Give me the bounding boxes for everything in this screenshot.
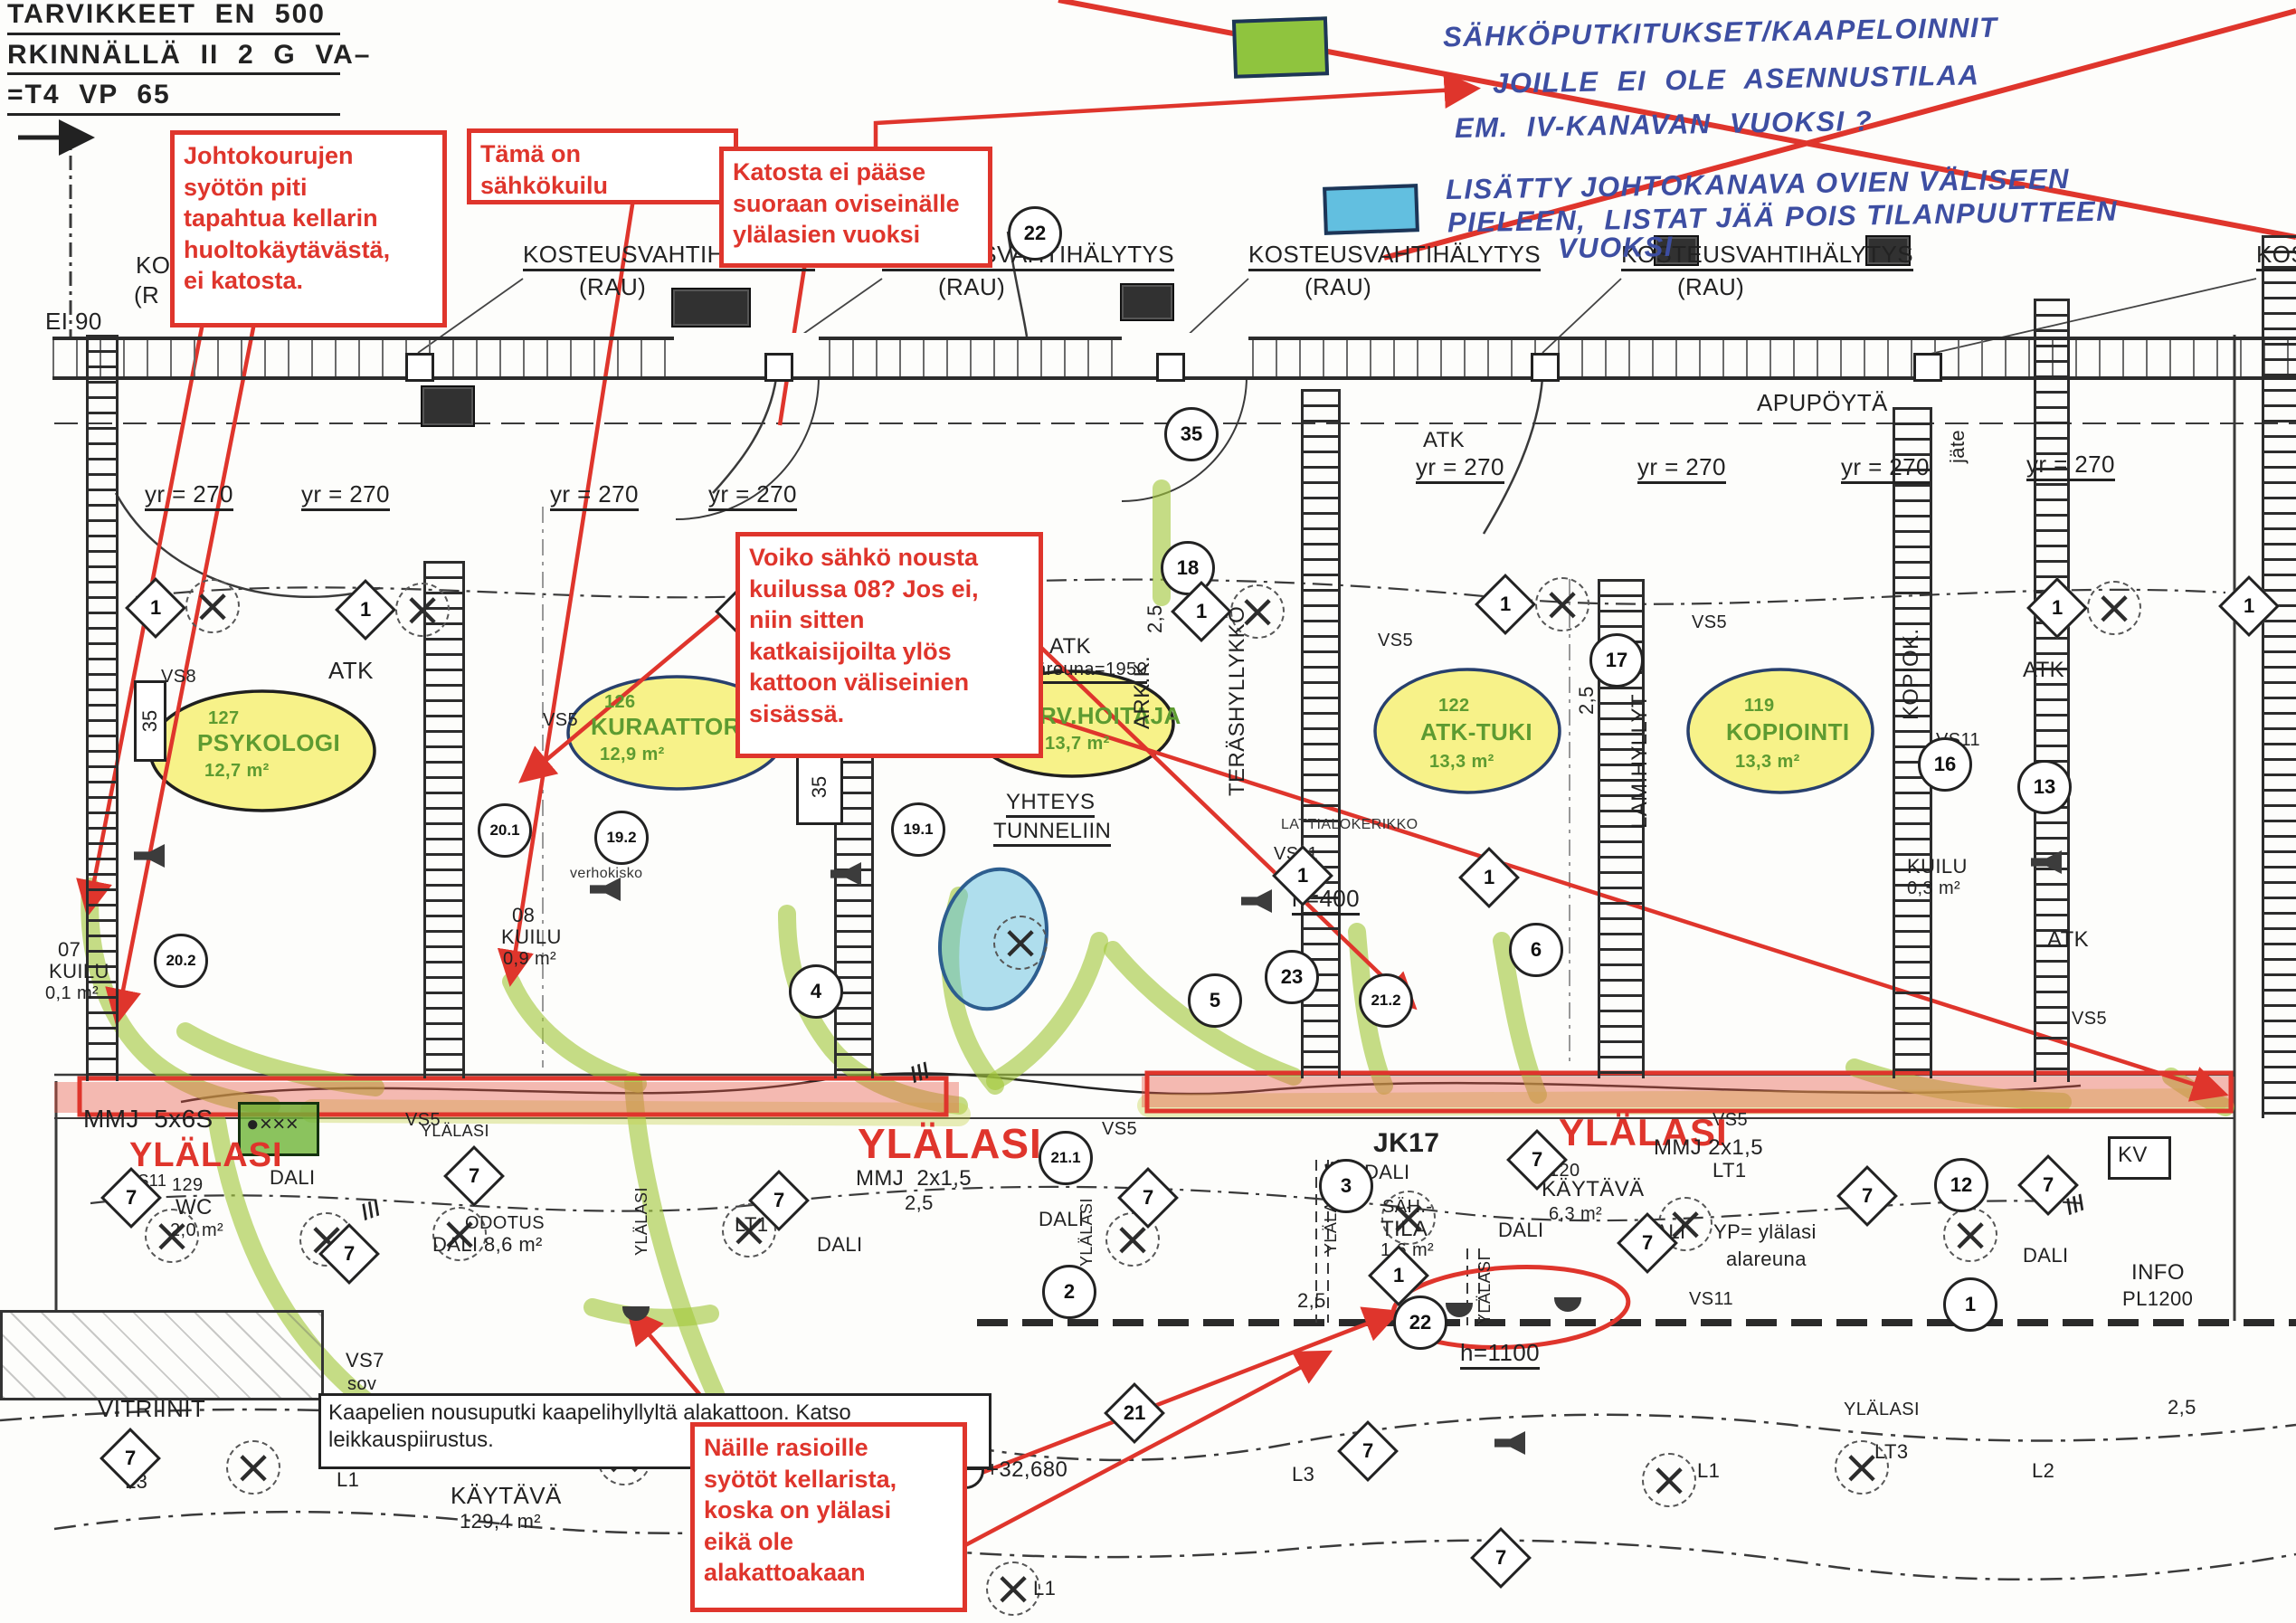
- plan-label: KOS: [2256, 242, 2296, 271]
- diamond-number: 7: [469, 1164, 479, 1188]
- plan-label: LT3: [1874, 1441, 1908, 1462]
- plan-label: L1: [1697, 1460, 1720, 1481]
- plan-label: YLÄLASI: [633, 1187, 650, 1256]
- plan-label: 13,7 m²: [1045, 735, 1110, 754]
- luminaire-icon: [993, 916, 1048, 970]
- plan-label: 2,5: [1297, 1290, 1326, 1311]
- plan-label: L1: [337, 1469, 359, 1490]
- plan-label: 126: [604, 693, 636, 712]
- diamond-number: 7: [126, 1186, 137, 1210]
- plan-label: ATK: [1423, 429, 1465, 451]
- plan-label: (R: [134, 283, 159, 308]
- plan-label: 12,7 m²: [204, 762, 270, 781]
- title-line: TARVIKKEET EN 500: [7, 0, 340, 35]
- plan-label: YLÄLASI: [1476, 1256, 1494, 1324]
- plan-label: YLÄLASI: [858, 1122, 1042, 1165]
- plan-label: yr = 270: [708, 482, 797, 511]
- plan-label: yr = 270: [550, 482, 639, 511]
- plan-label: LATTIALOKERIKKO: [1281, 818, 1418, 833]
- plan-label: L3: [1292, 1464, 1314, 1485]
- plan-label: 129,4 m²: [460, 1511, 541, 1532]
- plan-label: MMJ 2x1,5: [1654, 1136, 1763, 1159]
- plan-label: DALI: [2023, 1245, 2069, 1266]
- socket-cluster-icon: [1120, 283, 1174, 321]
- moisture-sensor-icon: [1156, 353, 1185, 382]
- plan-label: 12,9 m²: [600, 745, 665, 764]
- annotation-box-sahkokuilu: Tämä on sähkökuilu: [467, 128, 738, 204]
- plan-label: SÄH.-: [1382, 1198, 1432, 1217]
- diamond-number: 1: [1393, 1264, 1404, 1287]
- diamond-number: 1: [150, 596, 161, 620]
- plan-label: YLÄLASI: [421, 1123, 489, 1140]
- title-line: RKINNÄLLÄ II 2 G VA–: [7, 35, 340, 76]
- luminaire-icon: [185, 579, 240, 633]
- scanned-floorplan: TARVIKKEET EN 500 RKINNÄLLÄ II 2 G VA– =…: [0, 0, 2296, 1623]
- plan-label: INFO: [2131, 1261, 2185, 1284]
- plan-label: APUPÖYTÄ: [1757, 391, 1888, 415]
- plan-label: KOPIOINTI: [1726, 720, 1850, 745]
- plan-label: +32,680: [986, 1458, 1067, 1481]
- plan-label: (RAU): [1305, 275, 1371, 299]
- title-block: TARVIKKEET EN 500 RKINNÄLLÄ II 2 G VA– =…: [7, 0, 340, 116]
- plan-label: TERÄSHYLLYKKÖ: [1226, 606, 1248, 796]
- plan-label: verhokisko: [570, 867, 642, 882]
- plan-label: VITRIINIT: [98, 1397, 205, 1421]
- diamond-number: 7: [1362, 1439, 1373, 1463]
- plan-label: EI 90: [45, 309, 102, 334]
- plan-label: KUILU: [1907, 856, 1968, 877]
- socket-cluster-icon: [421, 385, 475, 427]
- plan-label: yr = 270: [1637, 455, 1726, 484]
- plan-label: 07: [58, 939, 81, 960]
- dim-35-box: 35: [796, 749, 843, 825]
- plan-label: PSYKOLOGI: [197, 731, 340, 755]
- diamond-number: 1: [1196, 600, 1207, 623]
- plan-label: KUILU: [501, 926, 562, 947]
- plan-label: 0,3 m²: [1907, 879, 1960, 898]
- plan-label: ATK: [1049, 635, 1091, 658]
- plan-label: WC: [176, 1196, 213, 1219]
- plan-label: DALI: [1039, 1209, 1085, 1229]
- number-balloon: 5: [1188, 973, 1242, 1028]
- luminaire-icon: [1943, 1208, 1997, 1262]
- plan-label: jäte: [1947, 430, 1968, 463]
- plan-label: yr = 270: [301, 482, 390, 511]
- annotation-box-johtokourut: Johtokourujen syötön piti tapahtua kella…: [170, 130, 447, 327]
- diamond-number: 7: [1495, 1546, 1506, 1570]
- plan-label: PL1200: [2122, 1288, 2193, 1309]
- diamond-number: 7: [1642, 1231, 1653, 1255]
- plan-label: 6,3 m²: [1549, 1205, 1602, 1224]
- plan-label: VS5: [1102, 1120, 1137, 1139]
- dim-35-box: 35: [134, 680, 166, 762]
- plan-label: KUILU: [49, 961, 109, 982]
- number-balloon: 3: [1319, 1159, 1373, 1213]
- handwritten-note-line: VUOKSI: [1558, 231, 1674, 265]
- plan-label: 13,3 m²: [1429, 753, 1494, 772]
- plan-label: KOSTEUSVAHTIHÄLYTYS: [1248, 242, 1541, 271]
- luminaire-icon: [395, 583, 450, 637]
- plan-label: L2: [2032, 1460, 2054, 1481]
- plan-label: VS5: [543, 711, 578, 730]
- plan-label: alareuna: [1726, 1248, 1807, 1269]
- plan-label: 0,9 m²: [503, 950, 556, 969]
- diamond-number: 7: [125, 1447, 136, 1470]
- luminaire-icon: [2087, 581, 2141, 635]
- number-balloon: 19.1: [891, 802, 945, 857]
- partition: [423, 561, 465, 1078]
- number-balloon: 23: [1265, 950, 1319, 1004]
- plan-label: sov: [347, 1375, 376, 1394]
- annotation-box-naille-rasioille: Näille rasioille syötöt kellarista, kosk…: [690, 1422, 967, 1612]
- plan-label: MMJ 2x1,5: [856, 1167, 972, 1190]
- moisture-sensor-icon: [764, 353, 793, 382]
- diamond-number: 7: [2043, 1173, 2054, 1197]
- plan-label: yr = 270: [2026, 452, 2115, 481]
- socket-cluster-icon: [671, 288, 751, 327]
- diamond-number: 1: [2052, 596, 2063, 620]
- number-balloon: 6: [1509, 923, 1563, 977]
- moisture-sensor-icon: [1531, 353, 1560, 382]
- number-balloon: 19.2: [594, 811, 649, 865]
- number-balloon: 21.1: [1039, 1131, 1093, 1185]
- wall-right-edge: [2262, 235, 2296, 1118]
- luminaire-icon: [1642, 1453, 1696, 1507]
- plan-label: 2,5: [1576, 686, 1597, 715]
- diamond-number: 1: [1484, 866, 1494, 889]
- plan-label: KV: [2118, 1144, 2148, 1166]
- number-balloon: 13: [2017, 760, 2072, 814]
- plan-label: KO: [136, 253, 170, 278]
- number-balloon: 20.2: [154, 934, 208, 988]
- blue-highlight-swatch: [1323, 184, 1419, 235]
- dim-35-label: 35: [138, 710, 162, 732]
- plan-label: 13,3 m²: [1735, 753, 1800, 772]
- plan-label: ARK.K.: [1131, 656, 1153, 729]
- number-balloon: 35: [1164, 407, 1219, 461]
- number-balloon: 21.2: [1359, 973, 1413, 1028]
- plan-label: LT1: [735, 1214, 768, 1235]
- plan-label: DALI 8,6 m²: [432, 1234, 543, 1255]
- diamond-number: 1: [1500, 593, 1511, 616]
- number-balloon: 22: [1008, 206, 1062, 261]
- moisture-sensor-icon: [405, 353, 434, 382]
- plan-label: yr = 270: [1841, 455, 1930, 484]
- number-balloon: 2: [1042, 1265, 1096, 1319]
- socket-group-icon: ●×××: [246, 1113, 299, 1135]
- plan-label: TUNNELIIN: [993, 820, 1111, 847]
- number-balloon: 16: [1918, 737, 1972, 792]
- plan-label: VS5: [1692, 613, 1727, 632]
- diamond-number: 7: [344, 1242, 355, 1266]
- wall-right: [2034, 299, 2070, 1082]
- vitriinit-shelf: [0, 1310, 324, 1400]
- plan-label: ATK: [2047, 928, 2089, 951]
- plan-label: 127: [208, 709, 240, 728]
- number-balloon: 1: [1943, 1277, 1997, 1332]
- plan-label: 122: [1438, 697, 1470, 716]
- plan-label: MMJ 5x6S: [83, 1106, 213, 1132]
- moisture-sensor-icon: [1913, 353, 1942, 382]
- plan-label: 119: [1744, 697, 1774, 716]
- plan-label: DALI: [1498, 1220, 1544, 1240]
- plan-label: KOPIOK.: [1900, 629, 1922, 721]
- plan-label: TILA: [1380, 1218, 1428, 1240]
- plan-label: ATK: [328, 659, 374, 683]
- plan-label: 2,5: [905, 1192, 934, 1213]
- plan-label: VS7: [346, 1350, 384, 1371]
- plan-label: YLÄLASI: [1844, 1400, 1920, 1419]
- diamond-number: 21: [1124, 1401, 1145, 1425]
- plan-label: VS11: [1689, 1290, 1733, 1309]
- plan-label: VS8: [161, 668, 196, 687]
- plan-label: DALI: [270, 1167, 316, 1188]
- plan-label: 0,1 m²: [45, 984, 99, 1003]
- diamond-number: 7: [773, 1189, 784, 1212]
- plan-label: yr = 270: [1416, 455, 1504, 484]
- partition: [1893, 407, 1932, 1078]
- luminaire-icon: [226, 1440, 280, 1495]
- diamond-number: 7: [1143, 1186, 1153, 1210]
- plan-label: ATK-TUKI: [1420, 720, 1532, 745]
- luminaire-icon: [986, 1561, 1040, 1616]
- plan-label: 129: [172, 1176, 204, 1195]
- plan-label: (RAU): [1677, 275, 1744, 299]
- dim-35-label: 35: [808, 776, 831, 798]
- plan-label: YP= ylälasi: [1713, 1221, 1817, 1242]
- plan-label: h=1100: [1460, 1341, 1540, 1370]
- plan-label: (RAU): [579, 275, 646, 299]
- plan-label: 08: [512, 905, 535, 925]
- number-balloon: 12: [1934, 1158, 1988, 1212]
- plan-label: YHTEYS: [1006, 791, 1095, 818]
- plan-label: (RAU): [938, 275, 1005, 299]
- title-line: =T4 VP 65: [7, 75, 340, 116]
- plan-label: DALI: [817, 1234, 863, 1255]
- plan-label: 2,5: [1144, 604, 1165, 633]
- plan-label: 2,5: [2168, 1397, 2196, 1418]
- diamond-number: 1: [2244, 594, 2254, 618]
- number-balloon: 17: [1589, 633, 1644, 688]
- diamond-number: 7: [1532, 1148, 1542, 1172]
- diamond-number: 1: [360, 598, 371, 622]
- plan-label: JK17: [1373, 1129, 1439, 1158]
- luminaire-icon: [1535, 577, 1589, 631]
- plan-label: 2,0 m²: [170, 1221, 223, 1240]
- plan-label: KÄYTÄVÄ: [451, 1484, 562, 1508]
- plan-label: LT1: [1713, 1160, 1746, 1181]
- number-balloon: 4: [789, 964, 843, 1019]
- annotation-box-katosta: Katosta ei pääse suoraan oviseinälle ylä…: [719, 147, 992, 268]
- plan-label: L1: [1033, 1578, 1056, 1599]
- diamond-number: 7: [1862, 1184, 1873, 1208]
- door-opening: [674, 333, 819, 376]
- plan-label: YLÄLASI: [129, 1138, 283, 1174]
- green-highlight-swatch: [1232, 16, 1329, 79]
- plan-label: ODOTUS: [465, 1214, 545, 1233]
- annotation-box-voiko-sahko: Voiko sähkö nousta kuilussa 08? Jos ei, …: [735, 532, 1043, 758]
- plan-label: ATK: [2023, 659, 2064, 681]
- number-balloon: 22: [1393, 1296, 1447, 1350]
- plan-label: KÄYTÄVÄ: [1542, 1178, 1645, 1201]
- door-opening: [1122, 333, 1248, 376]
- plan-label: yr = 270: [145, 482, 233, 511]
- diamond-number: 1: [1297, 864, 1308, 887]
- plan-label: KURAATTORI: [591, 715, 747, 739]
- plan-label: VS5: [1378, 631, 1413, 650]
- number-balloon: 20.1: [478, 803, 532, 858]
- plan-label: VS5: [2072, 1010, 2107, 1029]
- plan-label: LAM.HYLLYT: [1628, 694, 1651, 829]
